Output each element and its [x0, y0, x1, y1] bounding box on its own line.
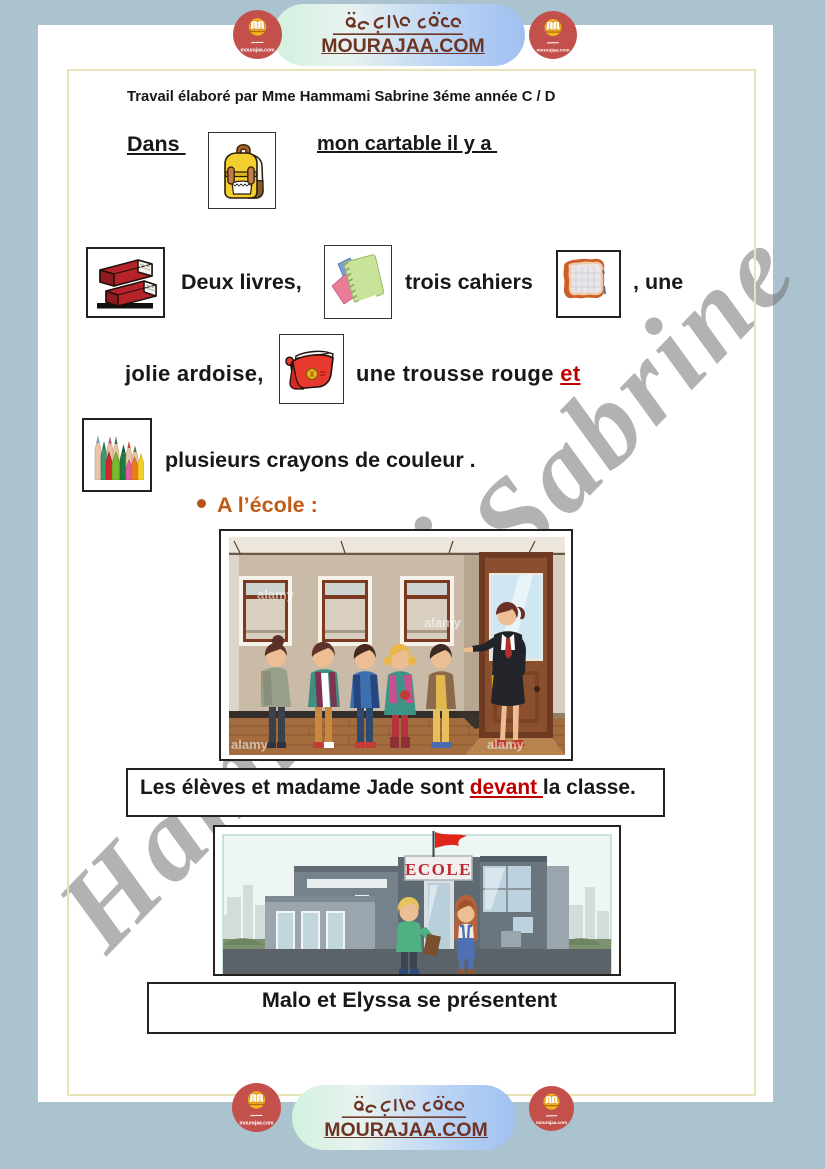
svg-text:alamy: alamy	[424, 615, 462, 630]
svg-text:mourajaa.com: mourajaa.com	[536, 48, 570, 54]
svg-text:alamy: alamy	[231, 737, 269, 752]
svg-text:mourajaa.com: mourajaa.com	[536, 1120, 567, 1125]
svg-text:mourajaa.com: mourajaa.com	[241, 48, 275, 54]
svg-text:alamy: alamy	[257, 587, 295, 602]
svg-text:alamy: alamy	[487, 737, 525, 752]
svg-text:mourajaa.com: mourajaa.com	[240, 1121, 274, 1127]
svg-text:ECOLE: ECOLE	[405, 860, 472, 879]
